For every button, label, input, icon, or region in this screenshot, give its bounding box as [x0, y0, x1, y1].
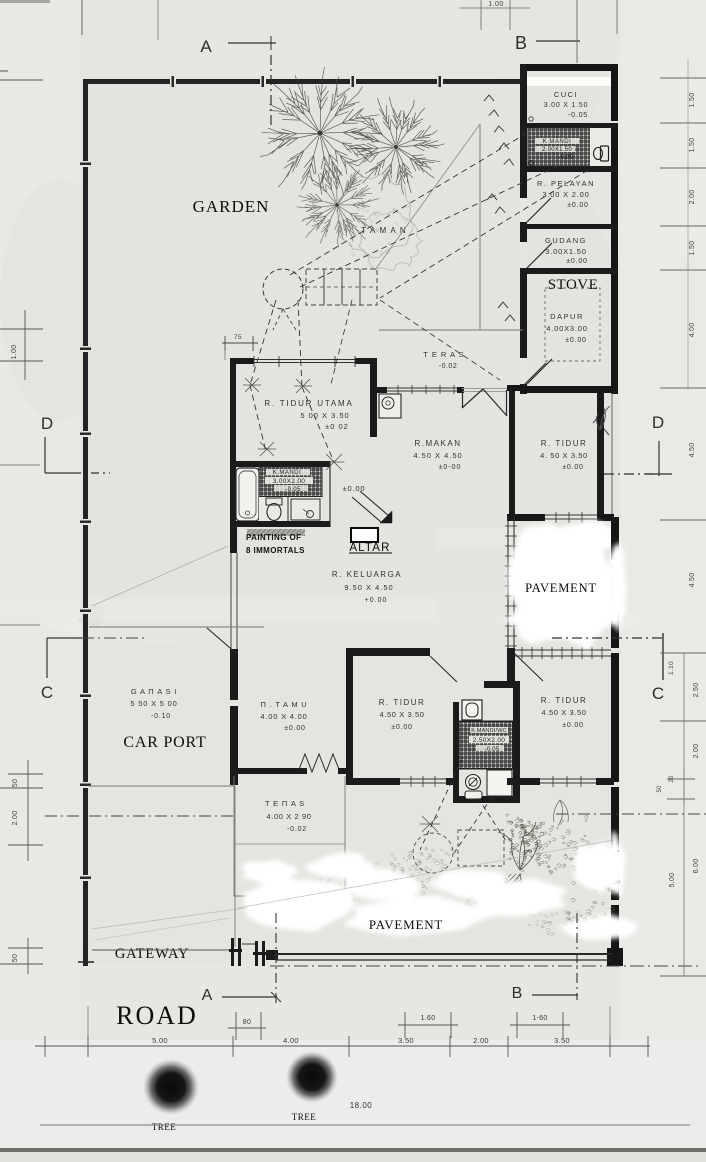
svg-text:C: C: [41, 683, 53, 702]
svg-text:18.00: 18.00: [350, 1101, 373, 1110]
svg-text:9.50 X 4.50: 9.50 X 4.50: [344, 583, 393, 592]
svg-text:R. TIDUR UTAMA: R. TIDUR UTAMA: [264, 399, 353, 408]
svg-text:1.00: 1.00: [11, 345, 18, 360]
svg-text:5.00: 5.00: [669, 873, 676, 888]
svg-text:T E П A S: T E П A S: [265, 799, 305, 808]
svg-text:PAVEMENT: PAVEMENT: [369, 917, 443, 932]
svg-text:GATEWAY: GATEWAY: [115, 946, 189, 962]
svg-text:1.50: 1.50: [689, 241, 696, 256]
svg-text:D: D: [41, 414, 53, 433]
svg-text:T E R A S: T E R A S: [423, 350, 464, 359]
svg-text:G A П A S I: G A П A S I: [131, 687, 177, 696]
svg-text:50: 50: [657, 785, 663, 793]
svg-text:±0.00: ±0.00: [391, 724, 412, 731]
svg-text:4.50 X 4.50: 4.50 X 4.50: [413, 451, 462, 460]
svg-text:8 IMMORTALS: 8 IMMORTALS: [246, 546, 305, 555]
svg-text:K.MANDI/WC: K.MANDI/WC: [471, 728, 507, 734]
svg-text:±0-00: ±0-00: [439, 464, 462, 471]
svg-text:R. KELUARGA: R. KELUARGA: [332, 570, 402, 579]
svg-text:R. TIDUR: R. TIDUR: [379, 698, 426, 707]
svg-text:1.50: 1.50: [689, 93, 696, 108]
svg-text:±0.00: ±0.00: [566, 258, 587, 265]
svg-text:1.50: 1.50: [689, 138, 696, 153]
svg-text:3.00X2.00: 3.00X2.00: [273, 478, 305, 485]
svg-text:2.00: 2.00: [693, 744, 700, 759]
svg-text:PAINTING OF: PAINTING OF: [246, 533, 301, 542]
svg-text:75: 75: [234, 334, 242, 341]
svg-text:1.00: 1.00: [488, 1, 504, 8]
svg-text:2.50X2.00: 2.50X2.00: [473, 737, 505, 744]
svg-text:A: A: [200, 37, 212, 56]
svg-text:4.50: 4.50: [689, 573, 696, 588]
svg-text:5 50 X 5 00: 5 50 X 5 00: [130, 699, 177, 708]
svg-text:D: D: [652, 413, 664, 432]
svg-text:+0.00: +0.00: [365, 597, 388, 604]
svg-text:R. TIDUR: R. TIDUR: [541, 439, 588, 448]
svg-text:±0.00: ±0.00: [567, 202, 588, 209]
svg-text:CUCI: CUCI: [554, 90, 578, 99]
svg-text:5 00 X 3.50: 5 00 X 3.50: [300, 411, 349, 420]
svg-text:-0.02: -0.02: [287, 826, 307, 833]
svg-text:R.MAKAN: R.MAKAN: [415, 439, 462, 448]
svg-text:ALTAR: ALTAR: [349, 542, 390, 554]
svg-text:B: B: [512, 985, 523, 1002]
svg-text:3.00X1.50: 3.00X1.50: [545, 247, 586, 256]
svg-text:C: C: [652, 684, 664, 703]
svg-text:TREE: TREE: [292, 1112, 317, 1122]
svg-text:4.00: 4.00: [689, 323, 696, 338]
svg-text:ROAD: ROAD: [116, 1001, 198, 1030]
svg-text:±0 02: ±0 02: [325, 422, 349, 431]
svg-text:4.50 X 3.50: 4.50 X 3.50: [542, 708, 587, 717]
svg-text:2.50: 2.50: [693, 683, 700, 698]
svg-text:50: 50: [12, 954, 19, 962]
svg-text:4.50: 4.50: [689, 443, 696, 458]
svg-text:4.00: 4.00: [283, 1036, 299, 1045]
svg-text:B: B: [515, 33, 527, 53]
svg-text:PAVEMENT: PAVEMENT: [525, 581, 597, 595]
svg-text:-0.05: -0.05: [484, 747, 500, 753]
svg-text:3.50: 3.50: [398, 1036, 414, 1045]
svg-text:R. TIDUR: R. TIDUR: [541, 696, 588, 705]
svg-text:±0.00: ±0.00: [284, 725, 305, 732]
svg-text:1.10: 1.10: [668, 661, 675, 675]
svg-text:50: 50: [12, 779, 19, 787]
svg-text:5.00: 5.00: [152, 1036, 168, 1045]
svg-text:K.MANDI: K.MANDI: [543, 139, 572, 145]
svg-text:3.00 X 2.00: 3.00 X 2.00: [542, 190, 589, 199]
svg-text:80: 80: [243, 1019, 251, 1026]
svg-text:TREE: TREE: [152, 1122, 177, 1132]
svg-text:T A M A N: T A M A N: [361, 226, 407, 235]
svg-text:3.00 X 1.50: 3.00 X 1.50: [544, 102, 589, 109]
svg-text:CAR PORT: CAR PORT: [123, 734, 206, 751]
svg-text:±0.00: ±0.00: [343, 484, 366, 493]
svg-text:A: A: [202, 987, 213, 1004]
svg-text:4.00 X 4.00: 4.00 X 4.00: [260, 712, 307, 721]
svg-text:DAPUR: DAPUR: [550, 312, 584, 321]
svg-text:1.60: 1.60: [421, 1015, 436, 1022]
svg-text:-0.10: -0.10: [151, 713, 171, 720]
svg-text:-0.05: -0.05: [558, 155, 574, 161]
svg-text:-0.05: -0.05: [568, 112, 588, 119]
svg-text:2.00X1.50: 2.00X1.50: [542, 147, 572, 153]
svg-text:4.00X3.00: 4.00X3.00: [546, 324, 587, 333]
svg-text:4.50 X 3.50: 4.50 X 3.50: [380, 710, 425, 719]
svg-text:4.00 X 2 90: 4.00 X 2 90: [267, 812, 312, 821]
svg-text:±0.00: ±0.00: [565, 337, 586, 344]
svg-text:K.MANDI: K.MANDI: [273, 470, 302, 476]
svg-text:1-60: 1-60: [532, 1015, 547, 1022]
svg-text:-0.05: -0.05: [285, 487, 301, 493]
svg-text:2.00: 2.00: [689, 190, 696, 205]
svg-text:GARDEN: GARDEN: [193, 197, 270, 216]
svg-text:±0.00: ±0.00: [562, 464, 583, 471]
svg-text:2.00: 2.00: [473, 1036, 489, 1045]
svg-text:STOVE: STOVE: [548, 277, 599, 293]
svg-text:П . T A M U: П . T A M U: [261, 700, 308, 709]
svg-text:-0.02: -0.02: [439, 363, 457, 370]
svg-text:±0.00: ±0.00: [562, 722, 583, 729]
svg-text:20: 20: [669, 775, 675, 783]
svg-text:2.00: 2.00: [12, 811, 19, 826]
svg-text:4. 50 X 3.50: 4. 50 X 3.50: [540, 451, 588, 460]
svg-text:6.00: 6.00: [693, 859, 700, 874]
svg-text:3.50: 3.50: [554, 1036, 570, 1045]
